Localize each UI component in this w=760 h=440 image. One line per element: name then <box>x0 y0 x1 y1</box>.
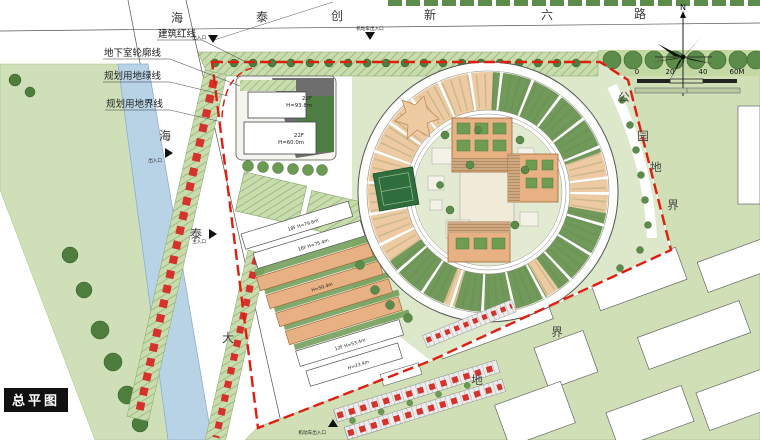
top-road-char: 海 <box>171 10 183 25</box>
park-label-char: 地 <box>650 160 662 174</box>
left-road-char: 大 <box>222 331 234 345</box>
top-road-char: 新 <box>424 7 436 22</box>
label-basement-outline: 地下室轮廓线 <box>104 47 162 59</box>
compass-north-label: N <box>680 3 686 12</box>
scale-tick: 40 <box>699 68 708 76</box>
scale-tick: 0 <box>635 68 639 76</box>
scale-tick: 60M <box>730 68 745 76</box>
tower-a-floors: 22F <box>302 96 312 102</box>
left-road-char: 海 <box>159 128 171 143</box>
circular-complex <box>358 62 618 322</box>
south-building <box>448 222 510 262</box>
entrance-label: 出入口 <box>148 157 162 164</box>
central-plaza <box>460 168 514 222</box>
label-building-red-line: 建筑红线 <box>158 28 197 40</box>
tower-a-height: H=93.8m <box>286 103 312 109</box>
top-road-char: 创 <box>331 9 343 23</box>
label-green-line: 规划用地绿线 <box>104 70 162 82</box>
top-road-char: 六 <box>541 8 553 22</box>
top-road-char: 路 <box>634 6 646 21</box>
podium-block: 22F H=93.8m 22F H=60.0m <box>236 76 336 160</box>
park-tree-row <box>603 51 760 69</box>
park-label-char: 界 <box>667 198 679 212</box>
plan-title: 总平图 <box>12 393 60 409</box>
left-road-char: 泰 <box>190 227 202 241</box>
master-plan-drawing: 22F H=93.8m 22F H=60.0m 18F H=79.6m 16F … <box>0 0 760 440</box>
park-label-char: 园 <box>637 129 649 143</box>
sports-court <box>373 167 419 211</box>
north-building <box>452 118 512 172</box>
tower-b-floors: 22F <box>294 133 304 139</box>
east-building <box>508 154 558 202</box>
site-plan-canvas: 22F H=93.8m 22F H=60.0m 18F H=79.6m 16F … <box>0 0 760 440</box>
entrance-label: 主入口 <box>192 238 206 245</box>
entrance-label: 机动车出入口 <box>356 25 384 32</box>
top-road-char: 泰 <box>256 10 268 24</box>
legend-box: 总平图 <box>4 388 68 412</box>
podium-roof-garden <box>240 80 296 91</box>
land-label-char: 地 <box>471 373 483 387</box>
entrance-label: 机动车出入口 <box>298 429 326 436</box>
scale-tick: 20 <box>666 68 675 76</box>
land-label-char: 界 <box>551 325 563 339</box>
park-label-char: 公 <box>618 90 630 104</box>
tower-b-footprint <box>244 122 316 154</box>
tower-b-height: H=60.0m <box>278 140 304 146</box>
label-land-boundary-line: 规划用地界线 <box>106 98 164 110</box>
entrance-label: 出入口 <box>192 34 206 41</box>
